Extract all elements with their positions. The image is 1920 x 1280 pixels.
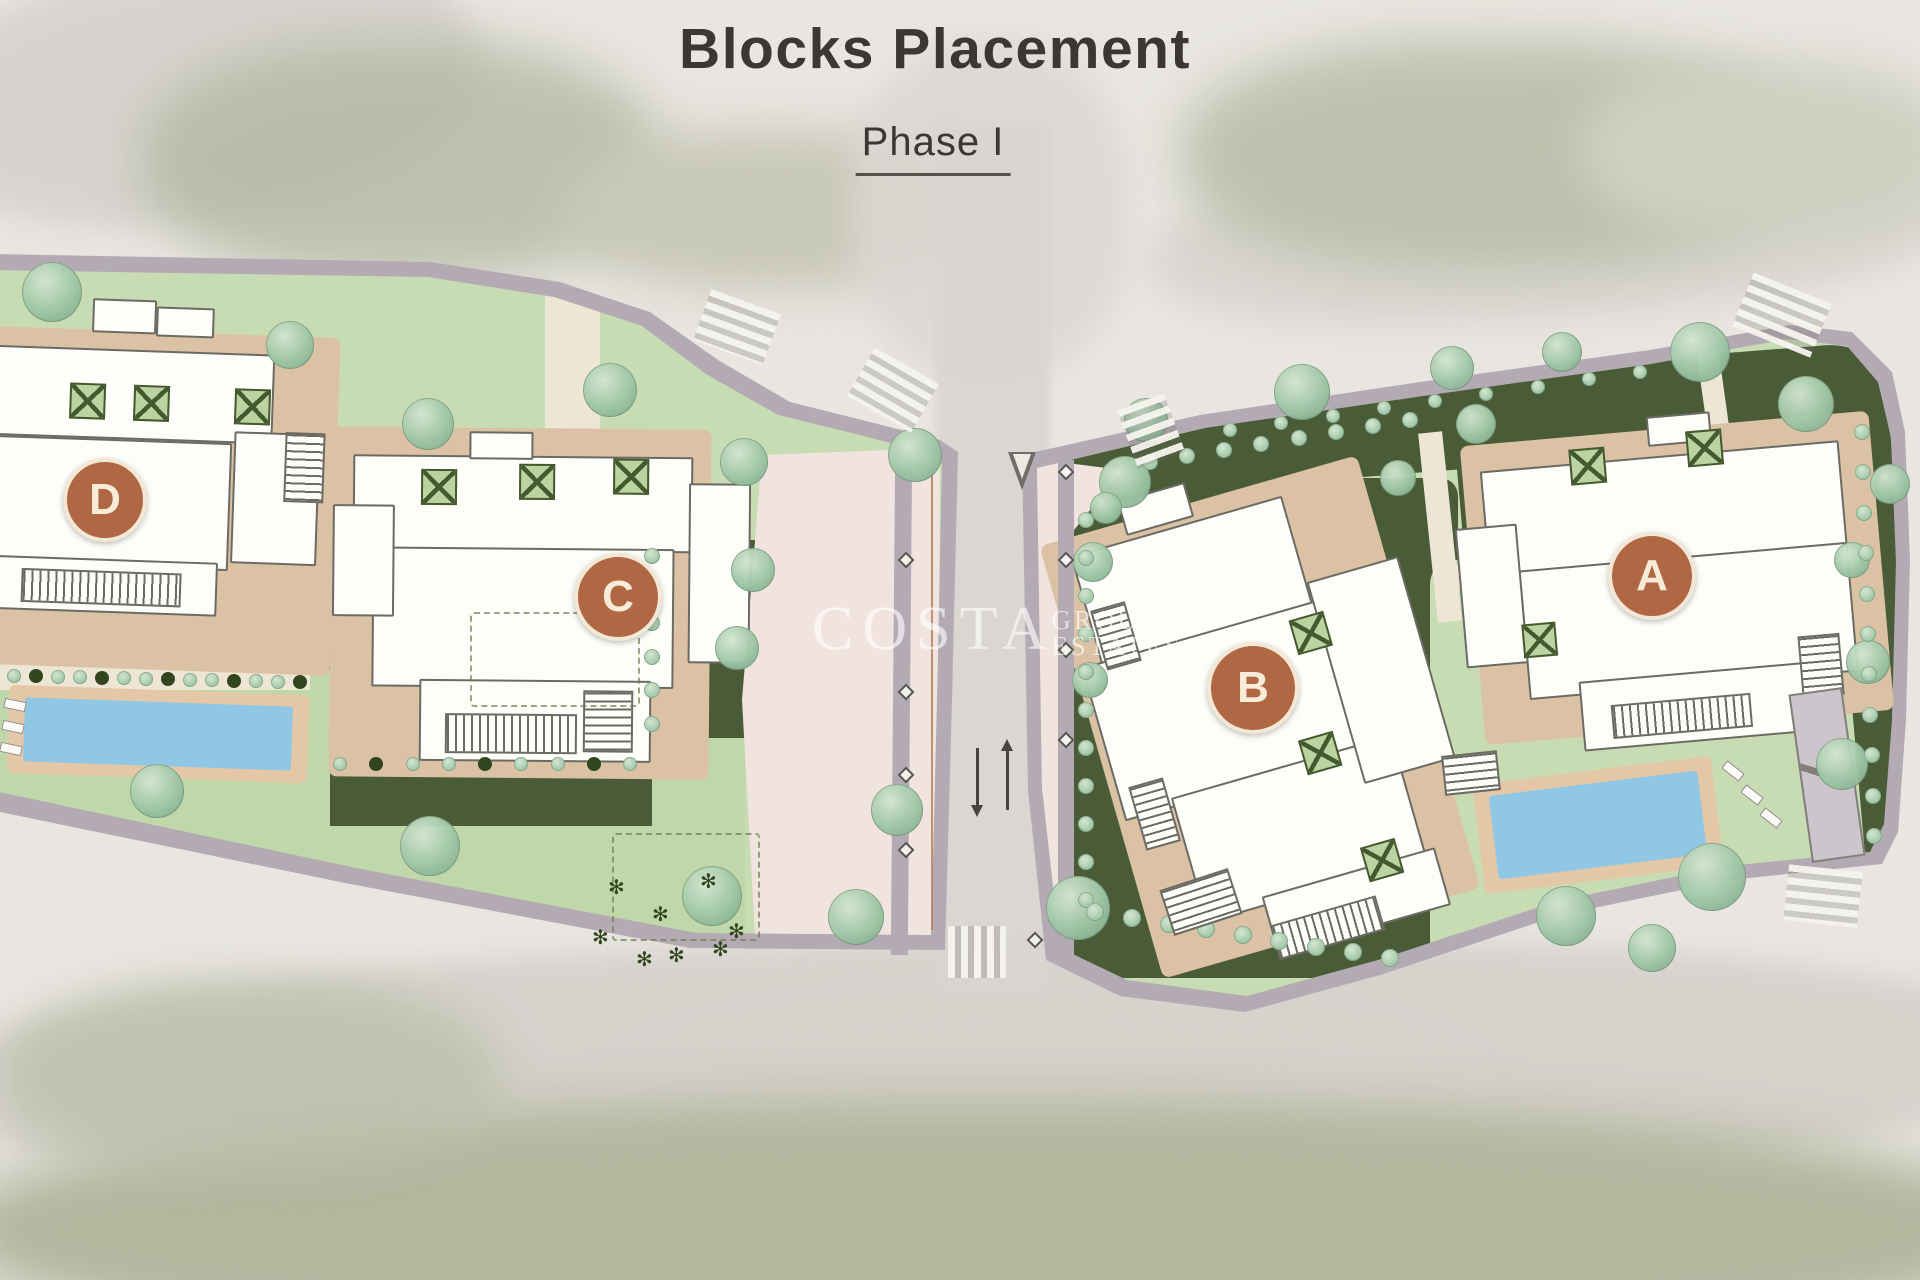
terrace-x-icon xyxy=(421,469,457,505)
terrace-x-icon xyxy=(1568,447,1607,486)
building-wing xyxy=(92,298,157,334)
terrace-x-icon xyxy=(133,385,170,422)
building-wing xyxy=(156,306,215,338)
yield-marker-icon xyxy=(1008,452,1036,490)
boundary-wall-east xyxy=(1058,460,1074,960)
building-wing xyxy=(688,483,752,664)
site-plan-canvas: ✻✻✻✻✻✻✻✻ D C B A COSTA GROUP ESTATES Blo… xyxy=(0,0,1920,1280)
utility-line xyxy=(931,470,933,930)
building-d-footprint xyxy=(0,288,357,722)
traffic-arrow-up-icon xyxy=(1006,744,1009,810)
balcony-railing xyxy=(445,713,577,754)
terrace-x-icon xyxy=(69,382,106,419)
watermark-secondary-bottom: ESTATES xyxy=(1051,634,1182,660)
crosswalk-stripes xyxy=(1783,864,1862,927)
pool-water xyxy=(23,697,293,770)
stairs xyxy=(583,690,634,752)
traffic-arrow-down-icon xyxy=(976,748,979,812)
building-c-footprint xyxy=(328,428,771,792)
page-title: Blocks Placement xyxy=(679,16,1191,82)
pool-water xyxy=(1489,771,1708,880)
block-marker-a: A xyxy=(1608,532,1696,620)
terrace-x-icon xyxy=(519,464,555,500)
block-label: C xyxy=(602,572,634,622)
satellite-field-blob xyxy=(1580,60,1920,240)
watermark-secondary: GROUP ESTATES xyxy=(1051,608,1182,659)
block-label: A xyxy=(1636,551,1668,601)
phase-label: Phase I xyxy=(856,120,1011,176)
block-marker-c: C xyxy=(574,553,662,641)
terrace-x-icon xyxy=(613,459,649,495)
satellite-vegetation-bottom-blob xyxy=(0,980,500,1170)
block-label: D xyxy=(89,475,121,525)
swimming-pool-west xyxy=(7,685,310,783)
terrace-x-icon xyxy=(234,388,271,425)
stairs xyxy=(283,432,325,503)
watermark-primary: COSTA xyxy=(812,598,1055,660)
building-wing xyxy=(469,431,533,460)
block-marker-b: B xyxy=(1207,642,1299,734)
terrace-x-icon xyxy=(1521,622,1558,659)
building-wing xyxy=(1455,524,1529,669)
block-marker-d: D xyxy=(63,458,147,542)
watermark: COSTA GROUP ESTATES xyxy=(812,598,1183,660)
watermark-secondary-top: GROUP xyxy=(1051,608,1182,634)
building-wing xyxy=(332,504,395,617)
block-label: B xyxy=(1237,663,1269,713)
terrace-x-icon xyxy=(1685,428,1724,467)
balcony-railing xyxy=(21,568,182,608)
